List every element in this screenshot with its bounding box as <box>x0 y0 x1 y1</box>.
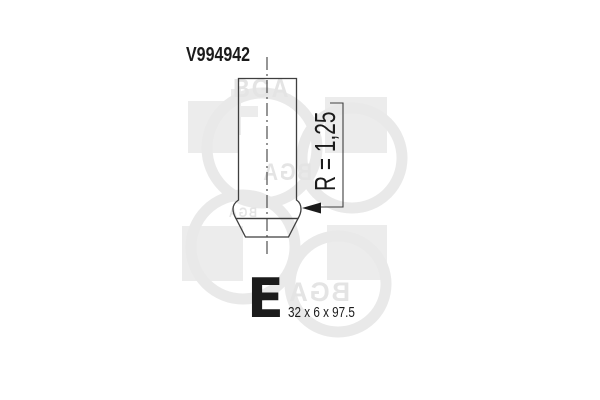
watermark-brand-text-mirrored: BGA <box>287 276 350 307</box>
bga-watermark: BGA BGA BGA BGA <box>182 75 402 332</box>
size-spec: 32 x 6 x 97.5 <box>288 304 355 321</box>
part-number: V994942 <box>186 43 250 65</box>
watermark-brand-text: BGA <box>233 75 290 103</box>
valve-diagram-svg: BGA BGA BGA BGA V994942 R = 1,25 E 32 x … <box>0 0 600 400</box>
radius-arrowhead-icon <box>302 203 321 214</box>
valve-type-letter: E <box>247 267 284 330</box>
valve-diagram-page: BGA BGA BGA BGA V994942 R = 1,25 E 32 x … <box>0 0 600 400</box>
radius-dimension-label: R = 1,25 <box>310 112 342 191</box>
watermark-brand-text-mirrored: BGA <box>262 158 312 185</box>
